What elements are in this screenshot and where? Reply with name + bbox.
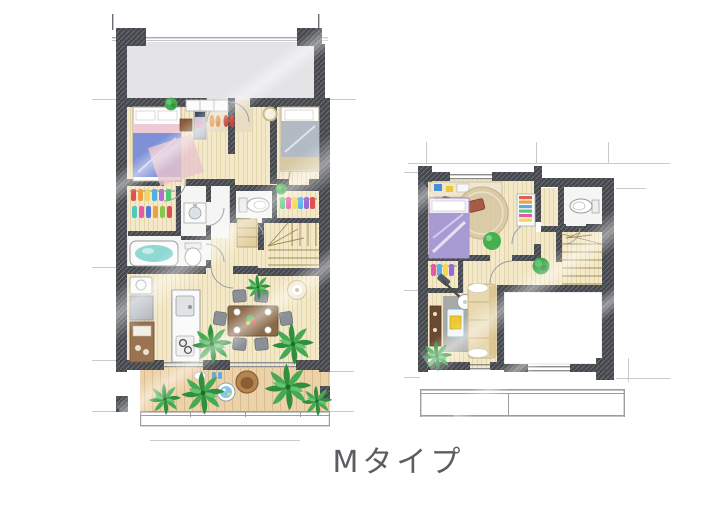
refrigerator bbox=[130, 296, 153, 320]
toilet bbox=[185, 243, 201, 266]
room-floors-1f bbox=[124, 42, 330, 411]
powder-toilet bbox=[239, 198, 269, 212]
tv-board bbox=[430, 306, 441, 346]
shelf-cabinet bbox=[186, 100, 228, 111]
toilet-2f bbox=[570, 199, 599, 213]
hall-plant bbox=[533, 258, 550, 275]
plant-ball bbox=[165, 98, 178, 111]
stair-bottom-steps bbox=[237, 219, 257, 247]
coffee-table bbox=[447, 309, 464, 337]
bathtub bbox=[130, 241, 178, 266]
sofa bbox=[468, 284, 496, 359]
bed-2f bbox=[429, 198, 469, 258]
first-floor-plan bbox=[92, 14, 356, 441]
void-area bbox=[504, 292, 602, 364]
bookshelf bbox=[517, 194, 535, 226]
shoes bbox=[210, 115, 215, 127]
kitchen-island bbox=[172, 290, 200, 362]
bean-bag bbox=[483, 232, 501, 250]
single-bed bbox=[281, 107, 319, 171]
plan-type-label: Mタイプ bbox=[286, 437, 511, 479]
floor-plan-sheet: Mタイプ bbox=[0, 0, 720, 509]
rattan-chair bbox=[236, 371, 258, 393]
second-floor-plan bbox=[404, 142, 670, 417]
balcony-railing-2f bbox=[420, 389, 625, 417]
floor-lamp bbox=[288, 281, 307, 300]
floor-plans-drawing bbox=[0, 0, 720, 509]
closet-2f bbox=[430, 264, 457, 276]
wall-mirror bbox=[264, 108, 277, 121]
washstand bbox=[184, 203, 206, 223]
balcony-railing bbox=[140, 411, 330, 426]
plant-ball bbox=[275, 183, 286, 194]
entry-terrace bbox=[124, 42, 316, 102]
